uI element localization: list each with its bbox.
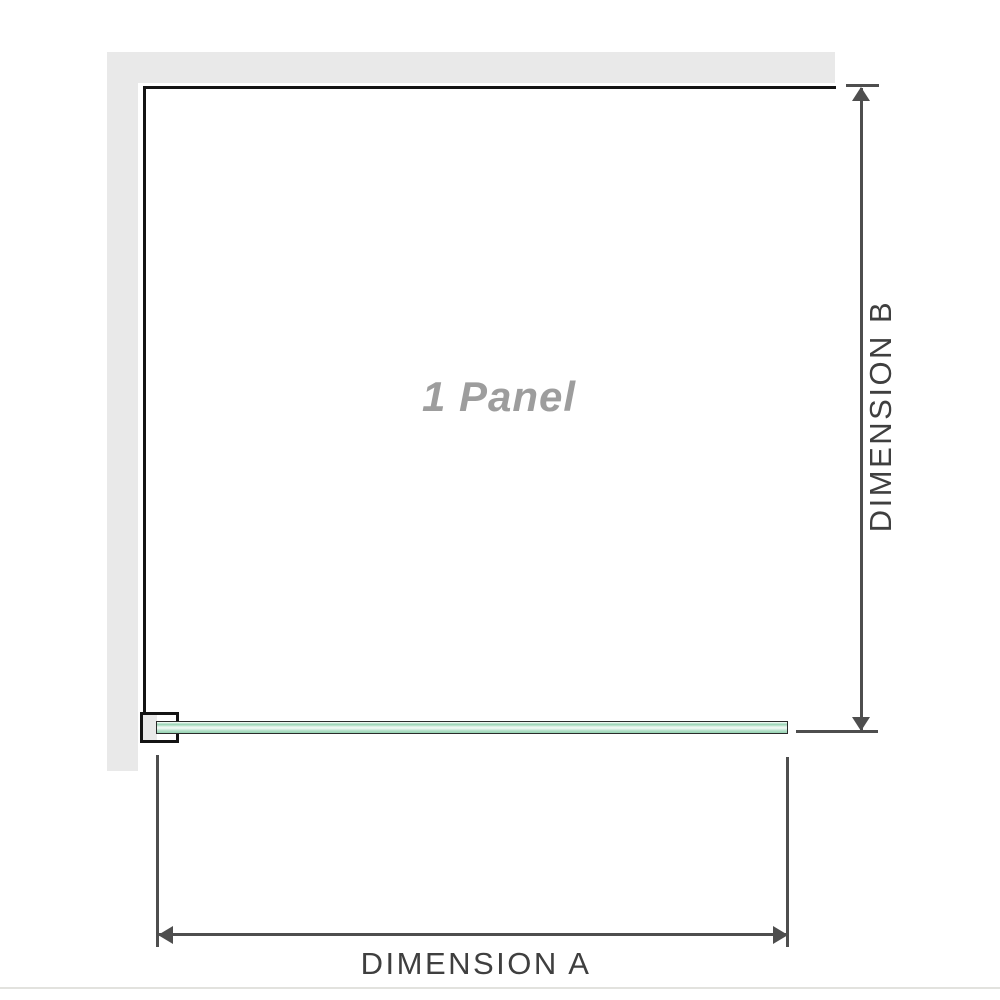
arrow-right-icon bbox=[773, 926, 788, 944]
dimension-a-extension-right bbox=[786, 757, 789, 947]
arrow-down-icon bbox=[852, 717, 870, 731]
panel-count-label: 1 Panel bbox=[422, 373, 576, 421]
dimension-a-extension-left bbox=[156, 755, 159, 947]
panel-outline-top bbox=[143, 86, 836, 89]
glass-panel bbox=[156, 721, 788, 734]
wall-top bbox=[107, 52, 835, 83]
arrow-up-icon bbox=[852, 87, 870, 101]
wall-bracket-pad bbox=[143, 715, 157, 740]
dimension-b-label: DIMENSION B bbox=[863, 300, 899, 532]
dimension-a-arrow-line bbox=[158, 933, 788, 936]
arrow-left-icon bbox=[158, 926, 173, 944]
panel-outline-left bbox=[143, 86, 146, 713]
bottom-divider bbox=[0, 987, 1000, 989]
wall-left bbox=[107, 52, 138, 771]
diagram-canvas: DIMENSION B DIMENSION A 1 Panel bbox=[0, 0, 1000, 1000]
dimension-a-label: DIMENSION A bbox=[361, 946, 592, 982]
